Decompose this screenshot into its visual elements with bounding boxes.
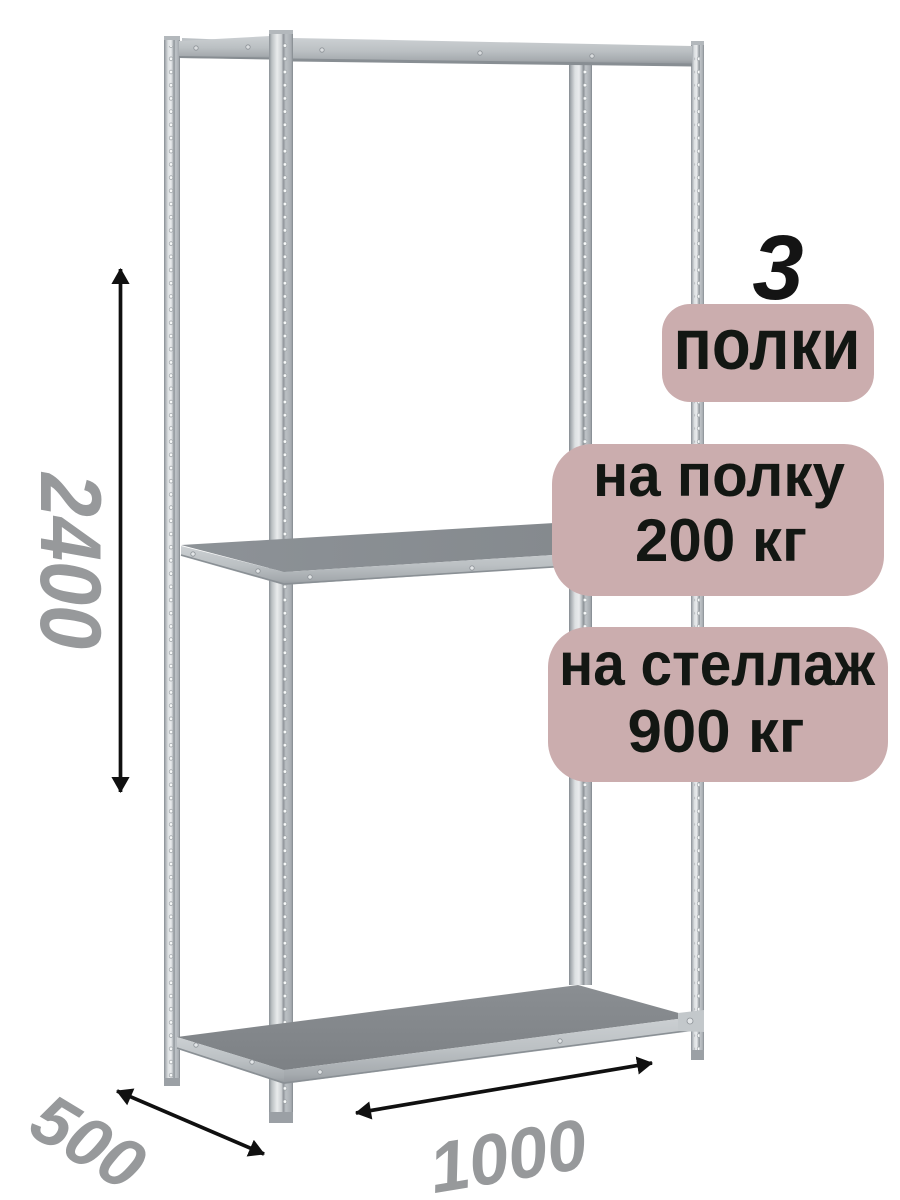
svg-text:3: 3	[752, 217, 803, 319]
svg-text:2400: 2400	[22, 471, 118, 649]
svg-text:полки: полки	[674, 305, 861, 385]
svg-text:200 кг: 200 кг	[635, 507, 807, 574]
svg-text:на стеллаж: на стеллаж	[559, 630, 876, 698]
svg-text:на полку: на полку	[593, 442, 846, 509]
svg-text:900 кг: 900 кг	[628, 698, 805, 765]
